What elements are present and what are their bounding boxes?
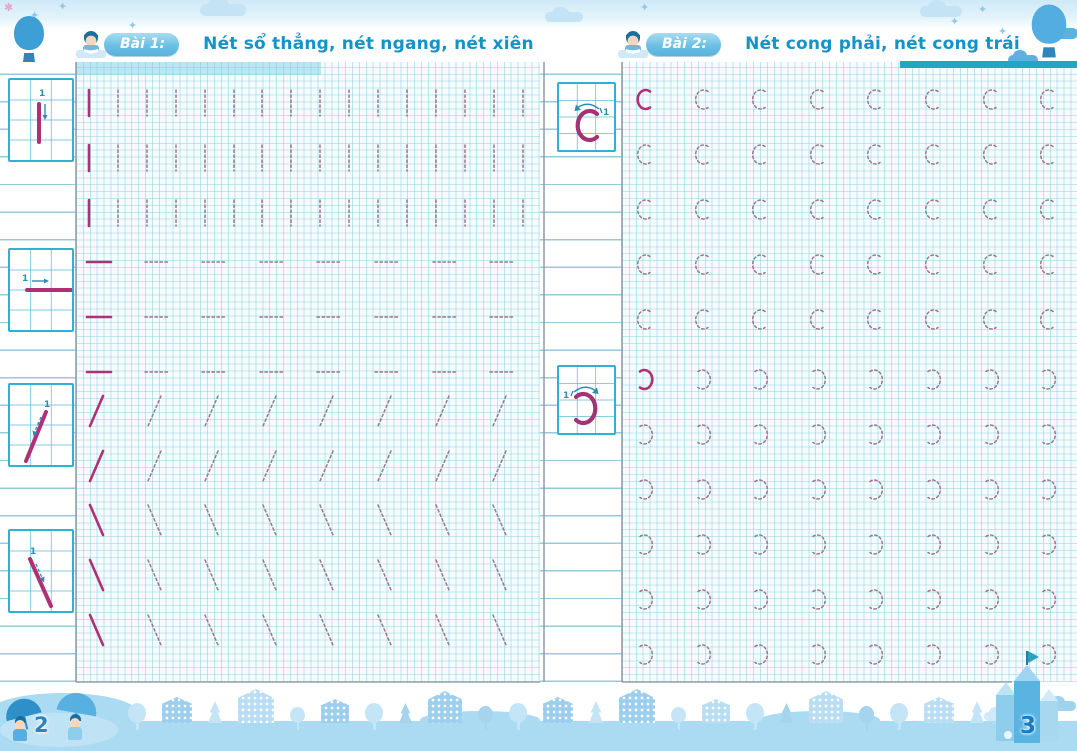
- trace-vertical-bar-glyph: [201, 88, 209, 118]
- trace-vertical-bar-glyph: [316, 143, 324, 173]
- trace-backslash-glyph: [200, 558, 222, 592]
- trace-backslash-glyph: [315, 558, 337, 592]
- trace-c-curve-glyph: [921, 307, 945, 333]
- trace-vertical-bar-glyph: [287, 88, 295, 118]
- tree-icon: [208, 701, 222, 723]
- trace-c-curve-glyph: [863, 252, 887, 278]
- trace-open-c-curve-glyph: [1036, 532, 1060, 558]
- trace-backslash-glyph: [315, 613, 337, 647]
- sample-slash-glyph: [85, 394, 107, 428]
- hot-air-balloon-icon: [1032, 5, 1067, 58]
- trace-horizontal-bar-glyph: [373, 368, 401, 376]
- trace-open-c-curve-glyph: [863, 422, 887, 448]
- trace-vertical-bar-glyph: [143, 88, 151, 118]
- trace-c-curve-glyph: [748, 87, 772, 113]
- hot-air-balloon-icon: [14, 16, 44, 62]
- trace-vertical-bar-glyph: [345, 198, 353, 228]
- trace-vertical-bar-glyph: [316, 88, 324, 118]
- trace-vertical-bar-glyph: [403, 198, 411, 228]
- star-icon: ✦: [978, 4, 987, 15]
- trace-c-curve-glyph: [863, 307, 887, 333]
- trace-open-c-curve-glyph: [863, 587, 887, 613]
- trace-c-curve-glyph: [691, 252, 715, 278]
- tree-icon: [780, 703, 793, 723]
- trace-open-c-curve-glyph: [863, 477, 887, 503]
- trace-open-c-curve-glyph: [979, 532, 1003, 558]
- trace-backslash-glyph: [200, 503, 222, 537]
- trace-horizontal-bar-glyph: [431, 368, 459, 376]
- lesson-badge: Bài 2:: [646, 33, 721, 56]
- trace-c-curve-glyph: [806, 252, 830, 278]
- trace-horizontal-bar-glyph: [315, 368, 343, 376]
- trace-open-c-curve-glyph: [806, 587, 830, 613]
- trace-open-c-curve-glyph: [691, 532, 715, 558]
- trace-backslash-glyph: [488, 613, 510, 647]
- trace-c-curve-glyph: [1036, 307, 1060, 333]
- trace-vertical-bar-glyph: [432, 88, 440, 118]
- trace-horizontal-bar-glyph: [143, 368, 171, 376]
- trace-open-c-curve-glyph: [748, 477, 772, 503]
- trace-open-c-curve-glyph: [691, 367, 715, 393]
- trace-open-c-curve-glyph: [691, 587, 715, 613]
- trace-c-curve-glyph: [863, 197, 887, 223]
- trace-c-curve-glyph: [979, 252, 1003, 278]
- lesson-title: Nét sổ thẳng, nét ngang, nét xiên: [203, 34, 534, 54]
- trace-open-c-curve-glyph: [806, 532, 830, 558]
- trace-backslash-glyph: [373, 503, 395, 537]
- tree-icon: [365, 703, 383, 723]
- trace-open-c-curve-glyph: [633, 587, 657, 613]
- trace-vertical-bar-glyph: [432, 198, 440, 228]
- sample-backslash-glyph: [85, 558, 107, 592]
- sample-horizontal-bar-glyph: [85, 368, 113, 376]
- stroke-order-number: 1: [30, 547, 36, 557]
- house-icon: [702, 699, 730, 723]
- stroke-order-number: 1: [22, 274, 28, 284]
- trace-vertical-bar-glyph: [287, 143, 295, 173]
- sample-vertical-bar-glyph: [85, 198, 93, 228]
- reading-child-icon: [614, 29, 652, 59]
- trace-slash-glyph: [431, 394, 453, 428]
- workbook-spread: ✱ ✦ ✦ ✦ ✦ ✦ ✦ ✦ Bài 1: Nét sổ thẳng, nét…: [0, 0, 1077, 751]
- sample-horizontal-bar-glyph: [85, 258, 113, 266]
- trace-backslash-glyph: [143, 613, 165, 647]
- trace-open-c-curve-glyph: [806, 477, 830, 503]
- trace-open-c-curve-glyph: [921, 532, 945, 558]
- sample-open-c-curve-glyph: [633, 367, 657, 393]
- trace-open-c-curve-glyph: [748, 587, 772, 613]
- trace-open-c-curve-glyph: [691, 477, 715, 503]
- trace-c-curve-glyph: [691, 307, 715, 333]
- trace-backslash-glyph: [200, 613, 222, 647]
- trace-open-c-curve-glyph: [863, 367, 887, 393]
- trace-open-c-curve-glyph: [1036, 367, 1060, 393]
- trace-backslash-glyph: [373, 558, 395, 592]
- trace-open-c-curve-glyph: [863, 642, 887, 668]
- trace-c-curve-glyph: [748, 307, 772, 333]
- trace-open-c-curve-glyph: [633, 532, 657, 558]
- trace-c-curve-glyph: [633, 252, 657, 278]
- trace-backslash-glyph: [488, 503, 510, 537]
- trace-horizontal-bar-glyph: [315, 313, 343, 321]
- sample-c-curve-glyph: [633, 87, 657, 113]
- sample-backslash-glyph: [85, 613, 107, 647]
- trace-horizontal-bar-glyph: [488, 368, 516, 376]
- trace-vertical-bar-glyph: [519, 143, 527, 173]
- trace-vertical-bar-glyph: [114, 143, 122, 173]
- house-icon: [321, 699, 349, 723]
- trace-open-c-curve-glyph: [921, 477, 945, 503]
- trace-slash-glyph: [315, 449, 337, 483]
- trace-slash-glyph: [200, 449, 222, 483]
- trace-vertical-bar-glyph: [143, 198, 151, 228]
- tree-icon: [128, 703, 146, 723]
- house-icon: [162, 697, 192, 723]
- trace-vertical-bar-glyph: [172, 88, 180, 118]
- tree-icon: [589, 701, 603, 723]
- trace-vertical-bar-glyph: [345, 88, 353, 118]
- stroke-order-number: 1: [44, 400, 50, 410]
- trace-c-curve-glyph: [1036, 252, 1060, 278]
- star-icon: ✦: [950, 16, 959, 27]
- tree-icon: [890, 703, 908, 723]
- trace-c-curve-glyph: [806, 87, 830, 113]
- trace-vertical-bar-glyph: [172, 143, 180, 173]
- trace-vertical-bar-glyph: [230, 198, 238, 228]
- trace-vertical-bar-glyph: [258, 198, 266, 228]
- trace-c-curve-glyph: [806, 307, 830, 333]
- trace-open-c-curve-glyph: [748, 532, 772, 558]
- trace-vertical-bar-glyph: [114, 88, 122, 118]
- trace-vertical-bar-glyph: [287, 198, 295, 228]
- footer-decoration: 2 3: [0, 678, 1077, 751]
- trace-vertical-bar-glyph: [143, 143, 151, 173]
- trace-backslash-glyph: [143, 558, 165, 592]
- trace-c-curve-glyph: [691, 87, 715, 113]
- trace-open-c-curve-glyph: [863, 532, 887, 558]
- trace-vertical-bar-glyph: [490, 88, 498, 118]
- stroke-order-number: 1: [603, 108, 609, 118]
- trace-open-c-curve-glyph: [921, 587, 945, 613]
- trace-backslash-glyph: [143, 503, 165, 537]
- trace-open-c-curve-glyph: [633, 642, 657, 668]
- trace-open-c-curve-glyph: [921, 367, 945, 393]
- page-number-right: 3: [1020, 713, 1036, 739]
- page-margin-line: [621, 62, 623, 682]
- stroke-order-number: 1: [563, 391, 569, 401]
- trace-c-curve-glyph: [633, 307, 657, 333]
- trace-horizontal-bar-glyph: [258, 258, 286, 266]
- trace-horizontal-bar-glyph: [488, 313, 516, 321]
- trace-open-c-curve-glyph: [691, 642, 715, 668]
- trace-vertical-bar-glyph: [432, 143, 440, 173]
- trace-c-curve-glyph: [1036, 142, 1060, 168]
- trace-c-curve-glyph: [1036, 87, 1060, 113]
- sample-vertical-bar-glyph: [85, 88, 93, 118]
- example-box-left-slant: 1: [8, 529, 74, 613]
- trace-c-curve-glyph: [691, 197, 715, 223]
- flag-icon: [1028, 651, 1039, 663]
- trace-open-c-curve-glyph: [806, 367, 830, 393]
- grid-top-edge: [900, 61, 1077, 68]
- trace-c-curve-glyph: [979, 142, 1003, 168]
- trace-horizontal-bar-glyph: [373, 313, 401, 321]
- reading-child-icon: [72, 29, 110, 59]
- example-box-left-curve: 1: [557, 365, 616, 435]
- trace-backslash-glyph: [488, 558, 510, 592]
- trace-vertical-bar-glyph: [258, 88, 266, 118]
- trace-horizontal-bar-glyph: [431, 258, 459, 266]
- trace-open-c-curve-glyph: [748, 642, 772, 668]
- trace-c-curve-glyph: [979, 307, 1003, 333]
- trace-vertical-bar-glyph: [374, 198, 382, 228]
- trace-slash-glyph: [373, 449, 395, 483]
- tree-icon: [671, 707, 686, 723]
- trace-slash-glyph: [258, 394, 280, 428]
- pencil-tower-icon: [1040, 701, 1058, 741]
- trace-vertical-bar-glyph: [201, 143, 209, 173]
- house-icon: [619, 689, 655, 723]
- trace-open-c-curve-glyph: [633, 422, 657, 448]
- stroke-order-number: 1: [39, 89, 45, 99]
- trace-open-c-curve-glyph: [921, 642, 945, 668]
- tree-icon: [509, 703, 527, 723]
- trace-horizontal-bar-glyph: [143, 258, 171, 266]
- trace-c-curve-glyph: [863, 87, 887, 113]
- tree-icon: [746, 703, 764, 723]
- trace-vertical-bar-glyph: [345, 143, 353, 173]
- trace-open-c-curve-glyph: [806, 422, 830, 448]
- example-box-horizontal-stroke: 1: [8, 248, 74, 332]
- trace-vertical-bar-glyph: [114, 198, 122, 228]
- trace-c-curve-glyph: [1036, 197, 1060, 223]
- lesson-badge: Bài 1:: [104, 33, 179, 56]
- trace-slash-glyph: [373, 394, 395, 428]
- trace-slash-glyph: [200, 394, 222, 428]
- trace-vertical-bar-glyph: [403, 88, 411, 118]
- grid-top-highlight: [76, 62, 321, 75]
- trace-vertical-bar-glyph: [374, 143, 382, 173]
- example-box-right-curve: 1: [557, 82, 616, 152]
- trace-horizontal-bar-glyph: [200, 368, 228, 376]
- trace-vertical-bar-glyph: [172, 198, 180, 228]
- star-icon: ✦: [640, 2, 649, 13]
- trace-c-curve-glyph: [633, 142, 657, 168]
- trace-horizontal-bar-glyph: [315, 258, 343, 266]
- trace-open-c-curve-glyph: [748, 367, 772, 393]
- trace-vertical-bar-glyph: [490, 143, 498, 173]
- trace-open-c-curve-glyph: [979, 422, 1003, 448]
- house-icon: [924, 697, 954, 723]
- trace-backslash-glyph: [258, 558, 280, 592]
- trace-horizontal-bar-glyph: [200, 313, 228, 321]
- house-icon: [809, 691, 843, 723]
- house-icon: [543, 697, 573, 723]
- trace-backslash-glyph: [431, 613, 453, 647]
- trace-c-curve-glyph: [979, 87, 1003, 113]
- star-icon: ✱: [4, 2, 13, 13]
- trace-vertical-bar-glyph: [461, 198, 469, 228]
- trace-open-c-curve-glyph: [979, 587, 1003, 613]
- trace-c-curve-glyph: [633, 197, 657, 223]
- trace-vertical-bar-glyph: [461, 143, 469, 173]
- trace-slash-glyph: [431, 449, 453, 483]
- trace-backslash-glyph: [431, 558, 453, 592]
- trace-horizontal-bar-glyph: [431, 313, 459, 321]
- star-icon: ✦: [58, 1, 67, 12]
- sample-horizontal-bar-glyph: [85, 313, 113, 321]
- trace-backslash-glyph: [373, 613, 395, 647]
- example-box-vertical-stroke: 1: [8, 78, 74, 162]
- trace-horizontal-bar-glyph: [258, 368, 286, 376]
- trace-slash-glyph: [488, 394, 510, 428]
- trace-vertical-bar-glyph: [316, 198, 324, 228]
- trace-c-curve-glyph: [748, 142, 772, 168]
- trace-backslash-glyph: [431, 503, 453, 537]
- trace-vertical-bar-glyph: [201, 198, 209, 228]
- trace-open-c-curve-glyph: [806, 642, 830, 668]
- trace-c-curve-glyph: [691, 142, 715, 168]
- trace-vertical-bar-glyph: [461, 88, 469, 118]
- trace-backslash-glyph: [258, 503, 280, 537]
- trace-vertical-bar-glyph: [519, 88, 527, 118]
- trace-open-c-curve-glyph: [748, 422, 772, 448]
- trace-c-curve-glyph: [921, 197, 945, 223]
- trace-vertical-bar-glyph: [490, 198, 498, 228]
- tree-icon: [859, 706, 874, 723]
- trace-c-curve-glyph: [863, 142, 887, 168]
- lesson-header-left: Bài 1: Nét sổ thẳng, nét ngang, nét xiên: [72, 28, 534, 60]
- cloud-icon: [200, 4, 246, 16]
- tree-icon: [290, 707, 305, 723]
- trace-c-curve-glyph: [979, 197, 1003, 223]
- trace-c-curve-glyph: [748, 252, 772, 278]
- trace-vertical-bar-glyph: [258, 143, 266, 173]
- trace-vertical-bar-glyph: [230, 143, 238, 173]
- trace-backslash-glyph: [258, 613, 280, 647]
- trace-horizontal-bar-glyph: [143, 313, 171, 321]
- house-icon: [238, 689, 274, 723]
- trace-open-c-curve-glyph: [1036, 422, 1060, 448]
- page-number-left: 2: [34, 713, 49, 737]
- trace-open-c-curve-glyph: [1036, 477, 1060, 503]
- sky-band: [0, 0, 1077, 30]
- trace-c-curve-glyph: [921, 87, 945, 113]
- trace-open-c-curve-glyph: [1036, 587, 1060, 613]
- trace-horizontal-bar-glyph: [258, 313, 286, 321]
- trace-open-c-curve-glyph: [979, 477, 1003, 503]
- tree-icon: [478, 706, 493, 723]
- trace-open-c-curve-glyph: [633, 477, 657, 503]
- trace-open-c-curve-glyph: [921, 422, 945, 448]
- trace-slash-glyph: [315, 394, 337, 428]
- example-box-right-slant: 1: [8, 383, 74, 467]
- house-icon: [428, 691, 462, 723]
- lesson-header-right: Bài 2: Nét cong phải, nét cong trái: [614, 28, 1020, 60]
- trace-horizontal-bar-glyph: [488, 258, 516, 266]
- trace-slash-glyph: [143, 449, 165, 483]
- trace-c-curve-glyph: [921, 252, 945, 278]
- page-gutter-line: [543, 62, 545, 682]
- trace-c-curve-glyph: [806, 142, 830, 168]
- sample-vertical-bar-glyph: [85, 143, 93, 173]
- lesson-title: Nét cong phải, nét cong trái: [745, 34, 1020, 54]
- tree-icon: [399, 703, 412, 723]
- trace-c-curve-glyph: [806, 197, 830, 223]
- trace-c-curve-glyph: [748, 197, 772, 223]
- cloud-icon: [545, 12, 583, 22]
- sample-backslash-glyph: [85, 503, 107, 537]
- trace-vertical-bar-glyph: [519, 198, 527, 228]
- castle-window-icon: [1004, 731, 1012, 739]
- trace-backslash-glyph: [315, 503, 337, 537]
- trace-open-c-curve-glyph: [979, 642, 1003, 668]
- trace-c-curve-glyph: [921, 142, 945, 168]
- footer-ground-band: [0, 721, 1077, 751]
- trace-horizontal-bar-glyph: [200, 258, 228, 266]
- tree-icon: [970, 701, 984, 723]
- trace-slash-glyph: [143, 394, 165, 428]
- trace-open-c-curve-glyph: [979, 367, 1003, 393]
- trace-open-c-curve-glyph: [691, 422, 715, 448]
- trace-vertical-bar-glyph: [403, 143, 411, 173]
- trace-slash-glyph: [258, 449, 280, 483]
- page-margin-line: [75, 62, 77, 682]
- trace-vertical-bar-glyph: [374, 88, 382, 118]
- trace-horizontal-bar-glyph: [373, 258, 401, 266]
- trace-slash-glyph: [488, 449, 510, 483]
- sample-slash-glyph: [85, 449, 107, 483]
- trace-vertical-bar-glyph: [230, 88, 238, 118]
